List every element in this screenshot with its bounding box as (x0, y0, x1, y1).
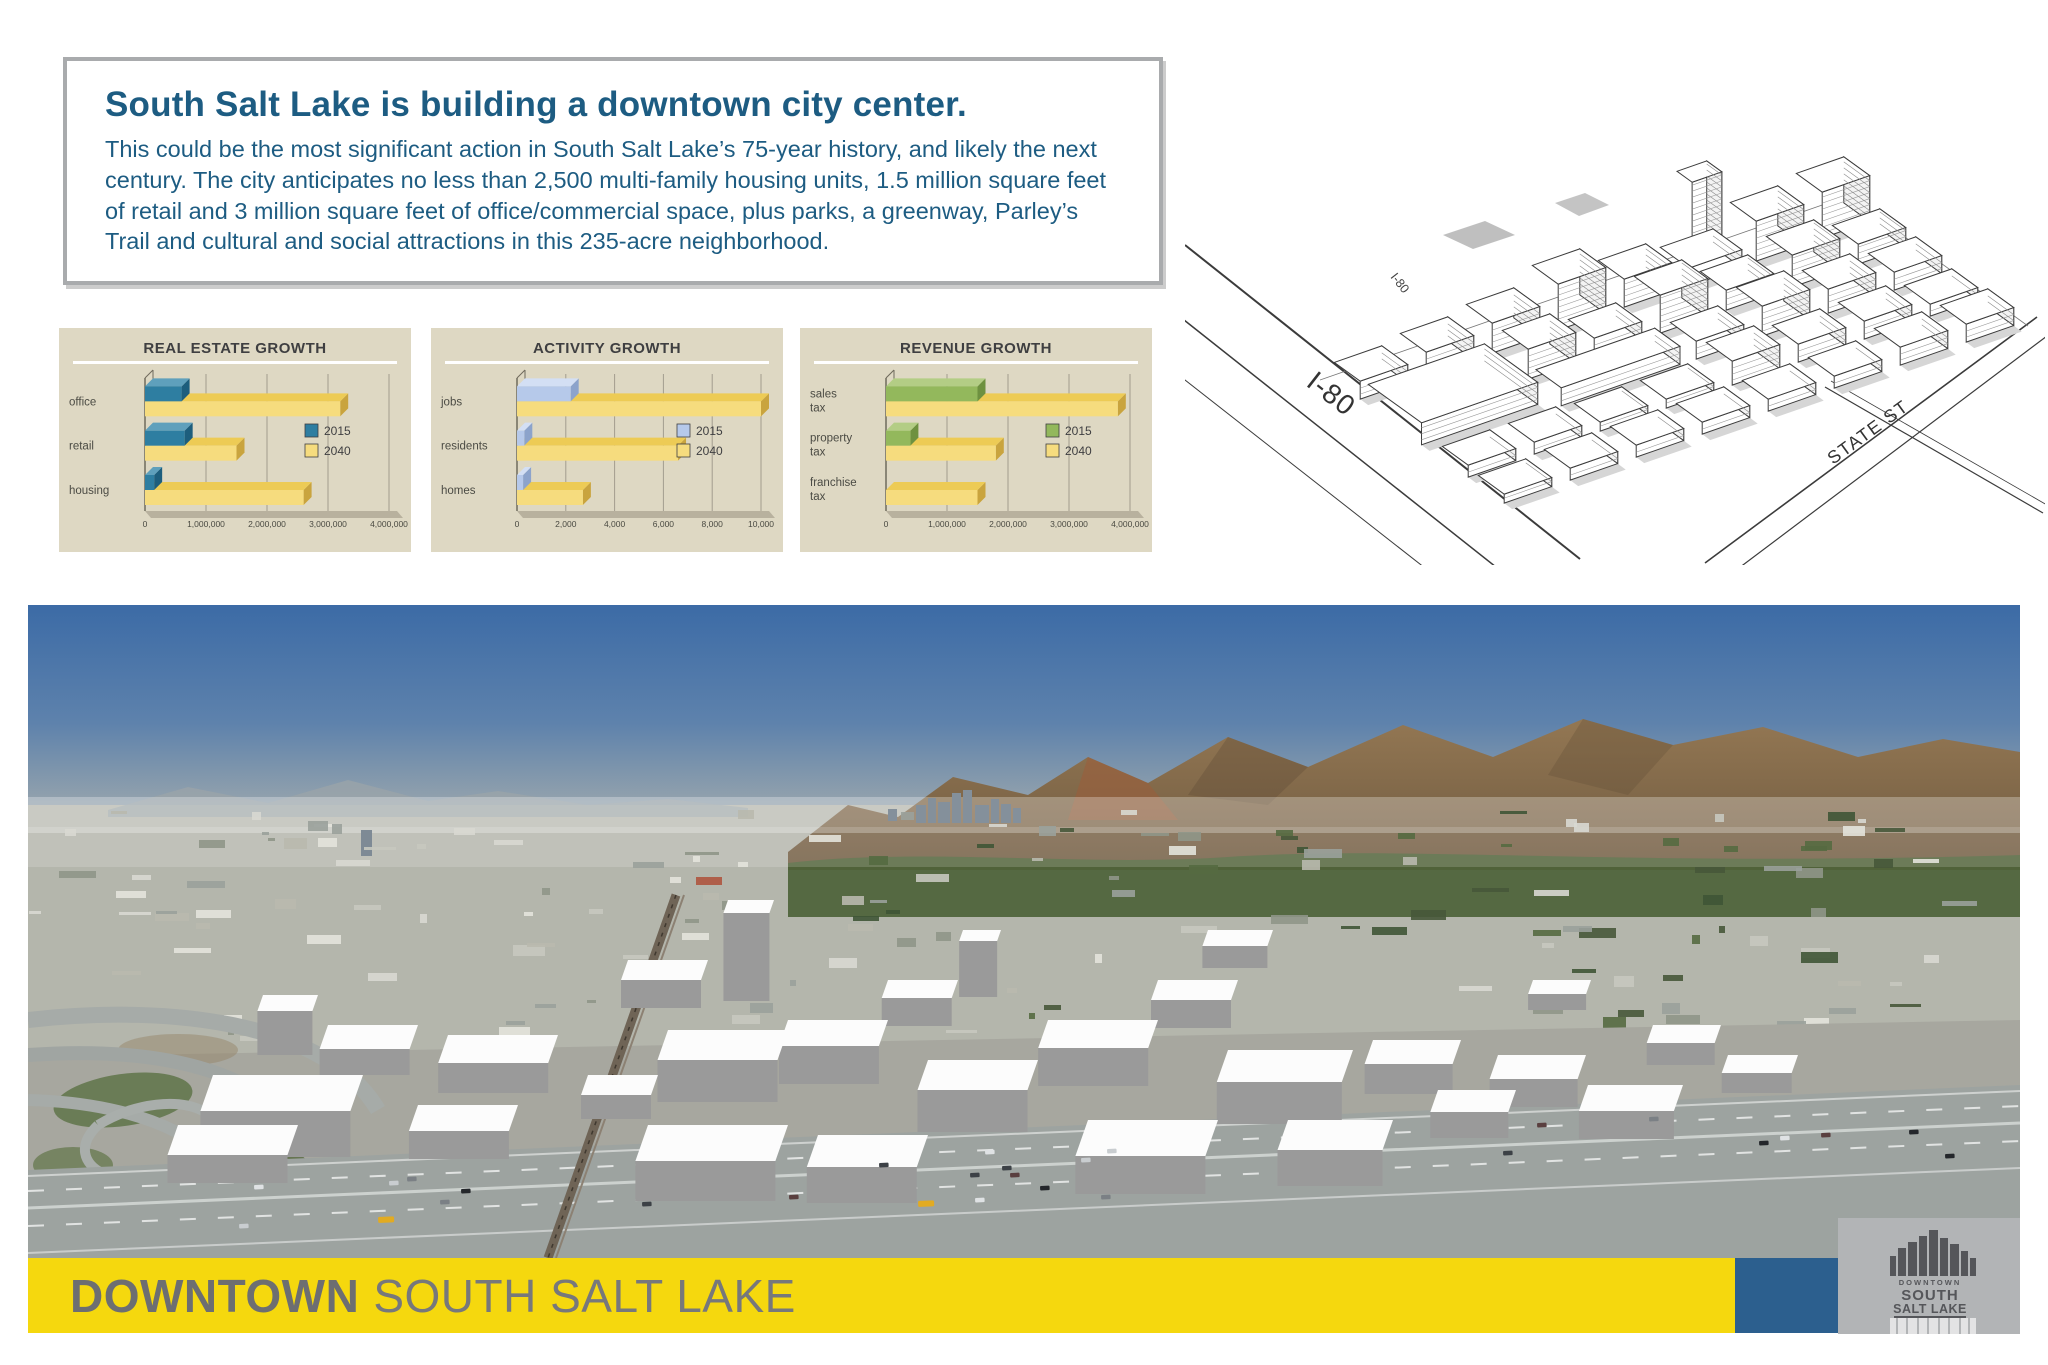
svg-text:2015: 2015 (696, 424, 723, 438)
svg-text:0: 0 (515, 519, 520, 529)
svg-text:I-80: I-80 (1388, 270, 1412, 296)
svg-text:0: 0 (143, 519, 148, 529)
svg-text:8,000: 8,000 (702, 519, 724, 529)
footer-accent-square (1735, 1258, 1838, 1333)
svg-text:DOWNTOWN: DOWNTOWN (1899, 1278, 1962, 1287)
svg-text:REAL ESTATE GROWTH: REAL ESTATE GROWTH (143, 340, 326, 357)
footer-title-rest: SOUTH SALT LAKE (373, 1270, 796, 1322)
svg-text:2,000: 2,000 (555, 519, 577, 529)
footer-bar: DOWNTOWNSOUTH SALT LAKE (28, 1258, 1735, 1333)
footer-title: DOWNTOWNSOUTH SALT LAKE (70, 1269, 796, 1323)
svg-text:tax: tax (810, 447, 826, 459)
svg-text:STATE ST: STATE ST (1824, 396, 1913, 468)
svg-text:office: office (69, 396, 96, 408)
svg-text:6,000: 6,000 (653, 519, 675, 529)
svg-text:2040: 2040 (696, 444, 723, 458)
svg-text:housing: housing (69, 485, 109, 497)
svg-text:retail: retail (69, 441, 94, 453)
svg-text:4,000,000: 4,000,000 (370, 519, 408, 529)
page-title: South Salt Lake is building a downtown c… (105, 85, 1159, 125)
svg-text:2015: 2015 (324, 424, 351, 438)
svg-text:1,000,000: 1,000,000 (928, 519, 966, 529)
svg-text:residents: residents (441, 441, 488, 453)
isometric-district-sketch: I-80I-80STATE ST (1185, 85, 2045, 565)
svg-text:property: property (810, 433, 852, 445)
svg-text:3,000,000: 3,000,000 (309, 519, 347, 529)
svg-text:sales: sales (810, 388, 837, 400)
svg-text:tax: tax (810, 402, 826, 414)
svg-text:1,000,000: 1,000,000 (187, 519, 225, 529)
footer-title-bold: DOWNTOWN (70, 1270, 359, 1322)
svg-text:2040: 2040 (324, 444, 351, 458)
aerial-photo (28, 605, 2020, 1258)
svg-text:2015: 2015 (1065, 424, 1092, 438)
downtown-ssl-logo: DOWNTOWNSOUTHSALT LAKE (1838, 1218, 2020, 1334)
chart-revenue-growth: REVENUE GROWTH01,000,0002,000,0003,000,0… (800, 328, 1152, 552)
poster-page: South Salt Lake is building a downtown c… (0, 0, 2048, 1365)
svg-text:10,000: 10,000 (748, 519, 774, 529)
svg-text:ACTIVITY GROWTH: ACTIVITY GROWTH (533, 340, 681, 357)
svg-text:REVENUE GROWTH: REVENUE GROWTH (900, 340, 1052, 357)
svg-text:franchise: franchise (810, 477, 857, 489)
intro-paragraph: This could be the most significant actio… (105, 134, 1119, 257)
svg-text:2,000,000: 2,000,000 (989, 519, 1027, 529)
chart-activity-growth: ACTIVITY GROWTH02,0004,0006,0008,00010,0… (431, 328, 783, 552)
chart-real-estate-growth: REAL ESTATE GROWTH01,000,0002,000,0003,0… (59, 328, 411, 552)
svg-text:jobs: jobs (440, 396, 462, 408)
svg-text:0: 0 (884, 519, 889, 529)
svg-text:2,000,000: 2,000,000 (248, 519, 286, 529)
svg-text:tax: tax (810, 491, 826, 503)
svg-text:SALT LAKE: SALT LAKE (1893, 1302, 1967, 1316)
svg-text:2040: 2040 (1065, 444, 1092, 458)
svg-text:3,000,000: 3,000,000 (1050, 519, 1088, 529)
intro-box: South Salt Lake is building a downtown c… (63, 57, 1163, 285)
svg-text:4,000: 4,000 (604, 519, 626, 529)
svg-text:4,000,000: 4,000,000 (1111, 519, 1149, 529)
svg-text:homes: homes (441, 485, 476, 497)
